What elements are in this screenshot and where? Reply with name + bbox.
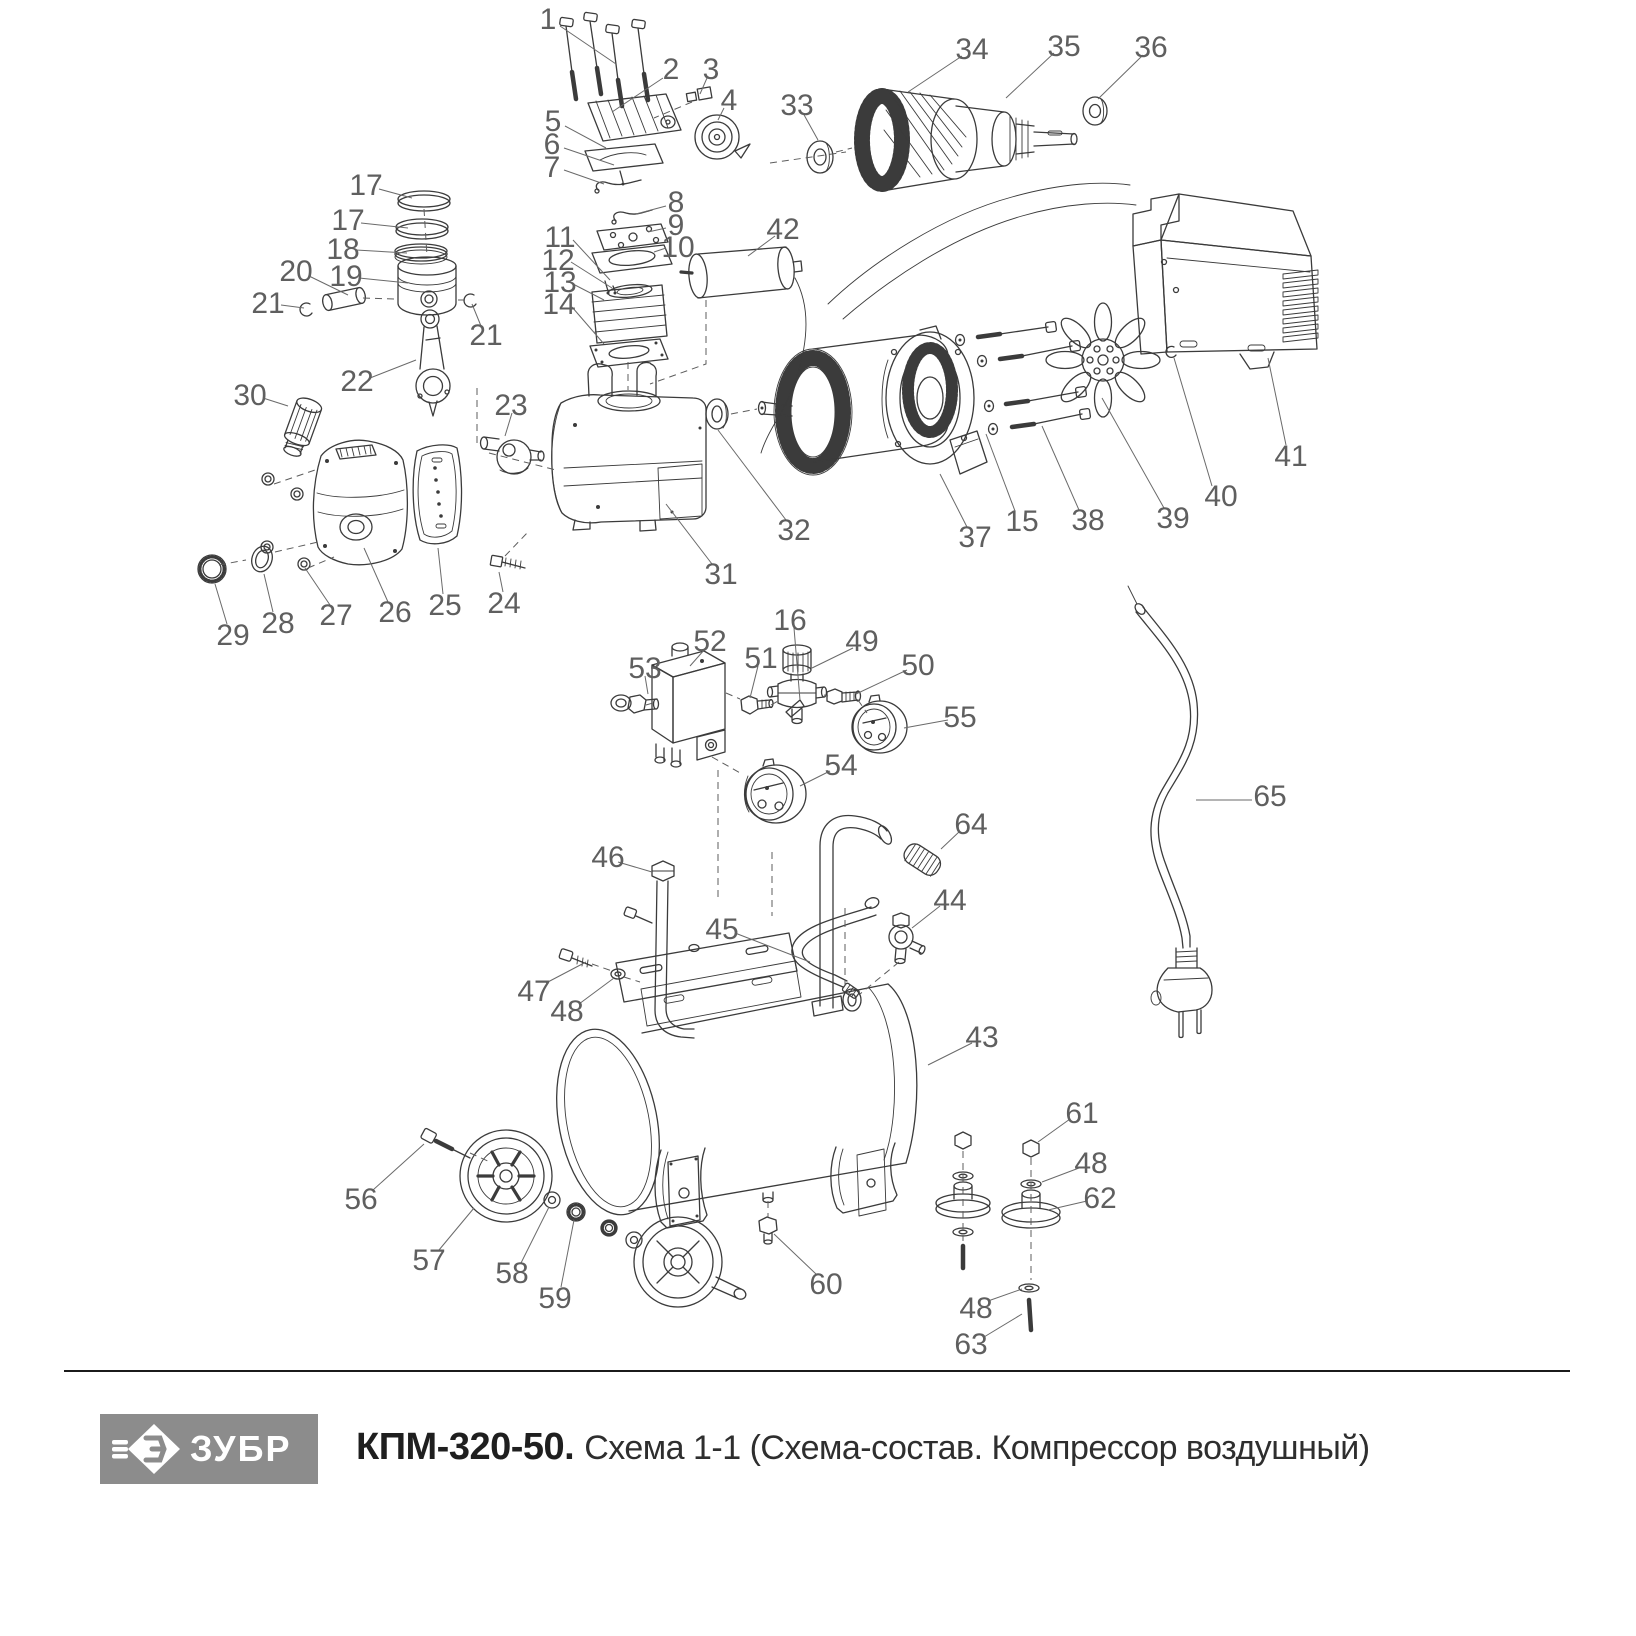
- part-label-22: 22: [340, 365, 373, 398]
- leader-line-55: [904, 720, 948, 728]
- leader-line-22: [370, 360, 416, 378]
- rotor-assembly: [807, 89, 1107, 191]
- part-label-3: 3: [703, 53, 720, 86]
- part-label-28: 28: [261, 607, 294, 640]
- zubr-logo-icon: [108, 1420, 186, 1478]
- part-label-27: 27: [319, 599, 352, 632]
- part-label-59: 59: [538, 1282, 571, 1315]
- part-label-7: 7: [544, 151, 561, 184]
- part-label-21: 21: [251, 287, 284, 320]
- part-label-16: 16: [773, 604, 806, 637]
- leader-line-14: [572, 307, 604, 344]
- leader-line-19: [359, 278, 408, 283]
- part-label-15: 15: [1005, 505, 1038, 538]
- part-label-4: 4: [721, 84, 738, 117]
- part-label-52: 52: [693, 625, 726, 658]
- part-label-30: 30: [233, 379, 266, 412]
- part-label-32: 32: [777, 514, 810, 547]
- part-label-44: 44: [933, 884, 966, 917]
- part-label-17: 17: [349, 169, 382, 202]
- part-label-1: 1: [540, 3, 557, 36]
- leader-line-11: [573, 240, 610, 280]
- part-label-43: 43: [965, 1021, 998, 1054]
- leader-line-38: [1042, 426, 1079, 510]
- crankcase-cover-assembly: [198, 437, 544, 583]
- leader-line-50: [856, 670, 907, 694]
- part-label-24: 24: [487, 587, 520, 620]
- part-label-48: 48: [1074, 1147, 1107, 1180]
- pressure-switch-assembly: [611, 643, 944, 1016]
- part-label-60: 60: [809, 1268, 842, 1301]
- part-label-56: 56: [344, 1183, 377, 1216]
- part-label-21: 21: [469, 319, 502, 352]
- schema-subtitle: Схема 1-1 (Схема-состав. Компрессор возд…: [584, 1429, 1369, 1467]
- part-label-31: 31: [704, 558, 737, 591]
- part-label-64: 64: [954, 808, 987, 841]
- part-label-42: 42: [766, 213, 799, 246]
- part-label-55: 55: [943, 701, 976, 734]
- leader-line-59: [561, 1220, 574, 1287]
- leader-line-30: [263, 398, 288, 406]
- cylinder-head-assembly: [560, 12, 750, 367]
- leader-line-13: [573, 284, 604, 300]
- part-label-45: 45: [705, 913, 738, 946]
- leader-line-26: [364, 548, 388, 602]
- part-label-33: 33: [780, 89, 813, 122]
- leader-line-16: [794, 628, 800, 700]
- leader-line-48: [579, 978, 614, 1004]
- leader-line-56: [373, 1144, 424, 1190]
- logo-box: ЗУБР: [100, 1414, 318, 1484]
- part-label-48: 48: [550, 995, 583, 1028]
- part-label-14: 14: [542, 288, 575, 321]
- page: { "footer": { "logo_text": "ЗУБР", "titl…: [0, 0, 1636, 1636]
- pump-crankcase-assembly: [552, 183, 1136, 531]
- leader-line-7: [564, 170, 604, 184]
- logo-text: ЗУБР: [190, 1431, 291, 1467]
- part-label-35: 35: [1047, 30, 1080, 63]
- part-label-48: 48: [959, 1292, 992, 1325]
- part-label-50: 50: [901, 649, 934, 682]
- exploded-diagram: 1234567891011121314171718192021212223302…: [0, 0, 1636, 1636]
- part-label-34: 34: [955, 33, 988, 66]
- leader-line-41: [1268, 358, 1286, 445]
- part-label-41: 41: [1274, 440, 1307, 473]
- leader-line-47: [546, 962, 586, 983]
- part-label-23: 23: [494, 389, 527, 422]
- leader-line-39: [1102, 398, 1164, 508]
- part-label-2: 2: [663, 53, 680, 86]
- part-label-10: 10: [661, 231, 694, 264]
- part-label-39: 39: [1156, 502, 1189, 535]
- leader-line-5: [565, 126, 606, 148]
- leader-line-29: [215, 584, 227, 624]
- part-labels: 1234567891011121314171718192021212223302…: [215, 3, 1308, 1361]
- leader-line-8: [636, 206, 666, 214]
- part-label-57: 57: [412, 1244, 445, 1277]
- part-label-46: 46: [591, 841, 624, 874]
- part-label-20: 20: [279, 255, 312, 288]
- part-label-26: 26: [378, 596, 411, 629]
- model-number: КПМ-320-50.: [356, 1426, 574, 1468]
- footer-divider: [64, 1370, 1570, 1372]
- part-label-38: 38: [1071, 504, 1104, 537]
- part-label-25: 25: [428, 589, 461, 622]
- part-label-61: 61: [1065, 1097, 1098, 1130]
- leader-line-40: [1174, 358, 1212, 486]
- leader-line-25: [438, 548, 443, 594]
- schema-title: КПМ-320-50.Схема 1-1 (Схема-состав. Комп…: [356, 1426, 1370, 1469]
- part-label-54: 54: [824, 749, 857, 782]
- part-label-36: 36: [1134, 31, 1167, 64]
- part-label-51: 51: [744, 642, 777, 675]
- piston-assembly: [279, 191, 476, 460]
- power-cord: [1128, 586, 1212, 1038]
- part-label-40: 40: [1204, 480, 1237, 513]
- part-label-58: 58: [495, 1257, 528, 1290]
- part-label-47: 47: [517, 975, 550, 1008]
- part-label-49: 49: [845, 625, 878, 658]
- part-label-63: 63: [954, 1328, 987, 1361]
- leader-line-34: [908, 56, 962, 92]
- part-label-62: 62: [1083, 1182, 1116, 1215]
- leader-line-58: [521, 1207, 549, 1263]
- leader-line-17: [361, 223, 408, 228]
- part-label-53: 53: [628, 652, 661, 685]
- leader-line-37: [940, 474, 967, 527]
- leader-line-15: [986, 434, 1015, 511]
- part-label-37: 37: [958, 521, 991, 554]
- leader-line-48: [988, 1289, 1022, 1301]
- part-label-65: 65: [1253, 780, 1286, 813]
- leader-line-32: [718, 430, 786, 520]
- motor-end-assembly: [882, 194, 1318, 474]
- part-label-29: 29: [216, 619, 249, 652]
